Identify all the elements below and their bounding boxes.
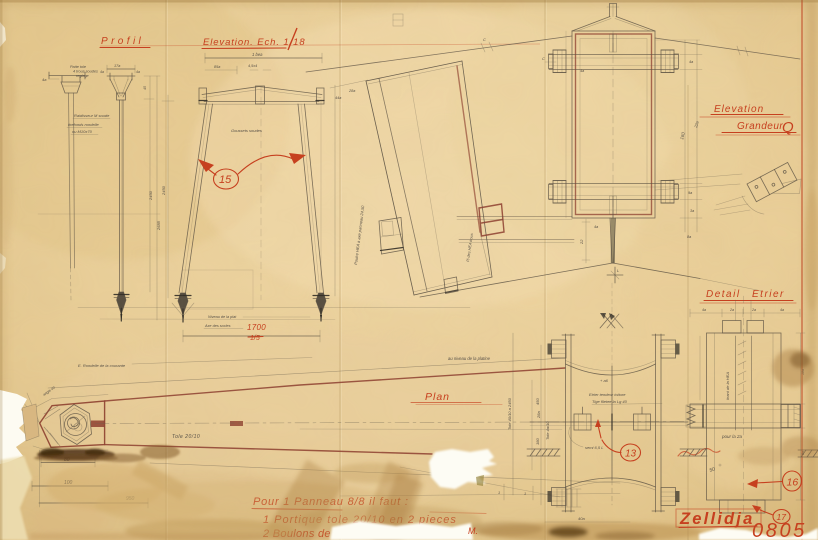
svg-text:4a: 4a [42, 77, 47, 82]
svg-text:Goussets soudes: Goussets soudes [231, 128, 262, 133]
svg-text:1: 1 [498, 491, 500, 495]
svg-text:4a: 4a [780, 308, 784, 312]
svg-text:Grandeur: Grandeur [737, 121, 783, 132]
svg-text:Etrier: Etrier [752, 289, 785, 300]
svg-text:1: 1 [524, 492, 526, 496]
svg-text:2450: 2450 [161, 185, 166, 196]
svg-text:450: 450 [535, 398, 540, 405]
svg-text:E. Rondelle de la courante: E. Rondelle de la courante [78, 363, 126, 368]
svg-text:28a: 28a [536, 411, 541, 419]
svg-text:4a: 4a [702, 308, 706, 312]
svg-text:au niveau de la platine: au niveau de la platine [448, 356, 491, 361]
svg-text:ou M10x70: ou M10x70 [72, 129, 93, 134]
svg-text:Patte tole: Patte tole [70, 65, 86, 69]
svg-text:Niveau de la plat: Niveau de la plat [208, 315, 237, 319]
svg-text:Tole 20/10: Tole 20/10 [172, 434, 200, 440]
svg-text:M.: M. [468, 526, 478, 536]
svg-text:4a: 4a [100, 70, 104, 74]
svg-text:17a: 17a [114, 64, 120, 68]
svg-text:+ a6: + a6 [600, 378, 609, 383]
svg-text:9a: 9a [688, 191, 692, 195]
svg-text:Elevation: Elevation [714, 104, 764, 115]
svg-text:Plan: Plan [425, 391, 450, 403]
svg-text:8a: 8a [687, 235, 691, 239]
svg-text:2a: 2a [729, 308, 734, 312]
svg-text:4a: 4a [594, 225, 598, 229]
svg-text:Tole 4a/10: Tole 4a/10 [545, 421, 550, 440]
svg-text:1 bea: 1 bea [252, 52, 263, 57]
svg-text:2685: 2685 [156, 220, 161, 231]
svg-text:180: 180 [535, 438, 540, 445]
svg-text:4 trous soudes: 4 trous soudes [73, 70, 98, 74]
svg-text:2a: 2a [751, 308, 756, 312]
svg-text:1700: 1700 [247, 323, 266, 332]
svg-text:45: 45 [143, 86, 147, 90]
svg-text:L: L [617, 268, 619, 273]
svg-text:C: C [483, 38, 486, 42]
svg-text:Tige filetee la Lg 40: Tige filetee la Lg 40 [592, 399, 628, 404]
svg-text:reglage: reglage [76, 74, 89, 78]
svg-text:13: 13 [625, 449, 637, 460]
svg-text:3a: 3a [690, 209, 694, 213]
svg-text:Tole 40/10 a 2450: Tole 40/10 a 2450 [507, 397, 512, 430]
svg-text:22: 22 [579, 239, 584, 245]
svg-text:85a: 85a [214, 65, 220, 69]
svg-text:16: 16 [787, 477, 799, 489]
svg-text:pour la 2a: pour la 2a [721, 434, 743, 439]
svg-text:tirant de la HEA: tirant de la HEA [725, 372, 730, 400]
svg-text:4,5x4: 4,5x4 [248, 64, 257, 68]
svg-text:C: C [542, 57, 545, 61]
svg-text:2450: 2450 [148, 190, 153, 201]
svg-text:Zellidja: Zellidja [679, 510, 754, 528]
svg-text:Axe des socles: Axe des socles [204, 324, 231, 328]
svg-text:28a: 28a [348, 89, 355, 93]
svg-text:44a: 44a [335, 96, 341, 100]
svg-text:Profil: Profil [101, 36, 144, 47]
svg-text:15: 15 [219, 174, 232, 186]
svg-text:40a: 40a [578, 516, 585, 521]
svg-text:Raidisseur M soude: Raidisseur M soude [74, 113, 110, 118]
svg-text:tirefonds rondelle: tirefonds rondelle [68, 122, 99, 127]
svg-text:1/5: 1/5 [250, 335, 260, 342]
svg-text:4a: 4a [689, 60, 693, 64]
svg-text:4a: 4a [136, 70, 140, 74]
svg-text:Detail: Detail [706, 289, 741, 300]
svg-text:0805: 0805 [752, 520, 807, 540]
svg-text:Q: Q [782, 119, 794, 136]
svg-text:Etrier tendeur toiture: Etrier tendeur toiture [589, 392, 626, 397]
svg-text:semi 6,5 L: semi 6,5 L [585, 445, 603, 450]
